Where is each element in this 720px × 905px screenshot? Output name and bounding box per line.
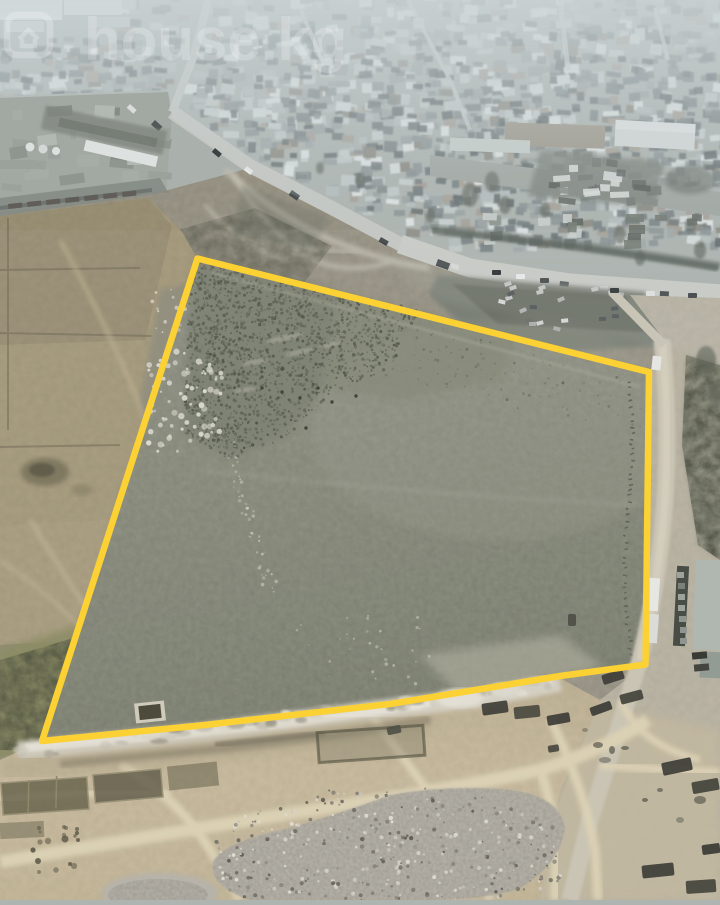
svg-text:house.kg: house.kg <box>84 6 347 73</box>
